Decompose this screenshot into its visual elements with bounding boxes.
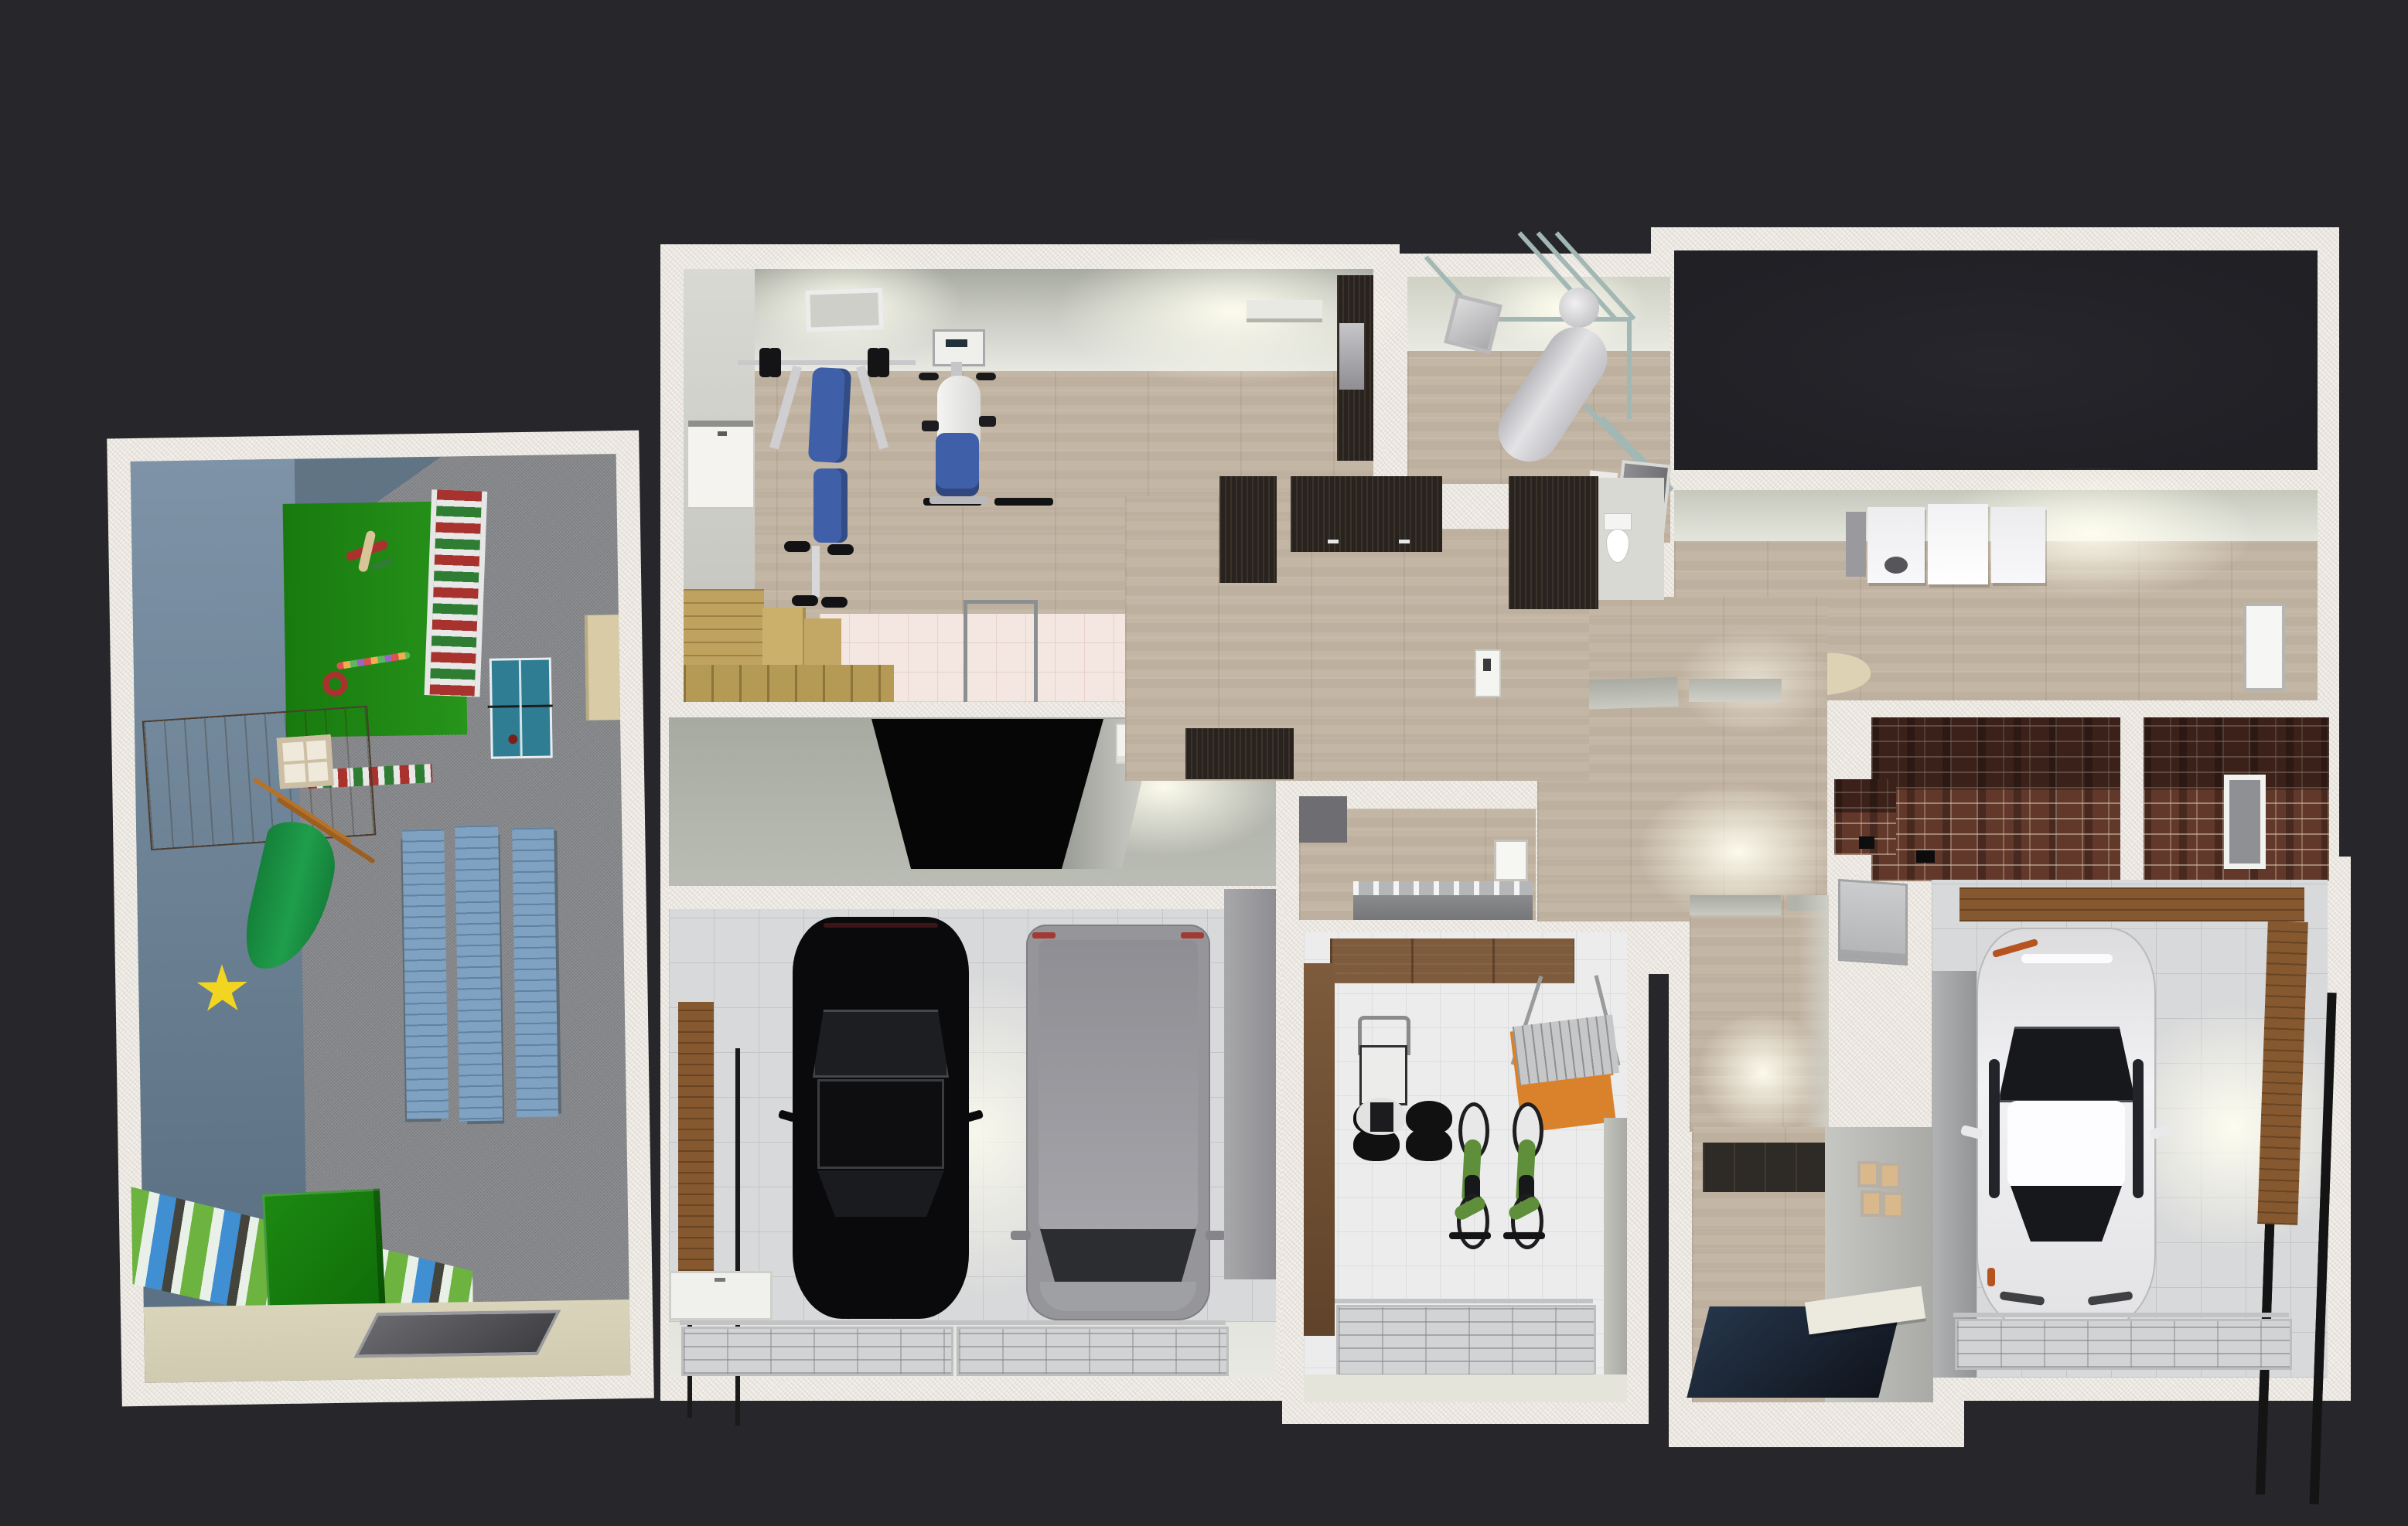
bench-pad-back [808,367,851,463]
wardrobe-row [1291,476,1442,552]
bike-handle-left [919,373,939,380]
bike-screen-display [946,339,967,347]
entry-wainscot [1703,1143,1825,1192]
mower-bag [1359,1045,1407,1105]
garage-door-sill [680,1320,1226,1325]
pipe [1627,317,1632,419]
car-side-window-left [1989,1059,2000,1198]
laundry-cabinet [1928,504,1988,584]
ceiling-vent [805,288,884,332]
cellar-window-frame [2224,775,2266,869]
doorway-lintel [1690,895,1781,915]
garage-door [1955,1319,2292,1370]
corridor-wall-face [1798,895,1829,1132]
garage-tall-cabinet [1224,889,1276,1279]
table-center-line [519,660,523,756]
car-windshield [817,1170,944,1217]
playroom-floor [131,454,631,1383]
bench-frame-left [769,365,802,449]
niche-object [1859,836,1874,849]
bike-base [929,496,988,504]
bathroom-door [1494,840,1528,881]
room-playroom [107,431,654,1407]
shed-apron [1304,1374,1627,1402]
room-shed [1304,932,1627,1402]
room-corridor [1690,895,1829,1132]
bench-pad-seat [813,468,848,543]
wardrobe-tall [1509,476,1598,609]
room-cellar-a [1871,717,2120,881]
van-hood [1040,1282,1196,1311]
playhouse-window [277,734,334,789]
dark-chest [1185,728,1294,779]
mower-engine [1370,1102,1393,1132]
switch-nub [1483,659,1491,671]
van-windshield [1040,1229,1196,1285]
van-mirror-left [1011,1231,1031,1240]
room-garage-main [669,717,1276,1378]
electrical-panel [1838,879,1908,966]
van-mirror-right [1206,1231,1226,1240]
bike-handle-right [976,373,996,380]
room-closet [1125,496,1589,781]
shower-glass-post [1034,600,1038,702]
cabinet-handle [715,1278,725,1282]
picture-frame [1861,1190,1882,1217]
toy-biplane [343,530,391,576]
barbell-plates-left [759,348,772,377]
wood-shelf-beam [1959,887,2304,921]
van-taillight-right [1181,932,1204,938]
sink-faucets [1353,881,1533,895]
laundry-side-cabinet [1846,512,1866,577]
car-taillight-strip [824,923,938,928]
room-garage-right [1932,880,2328,1378]
gray-van [1026,925,1210,1320]
wardrobe [1219,476,1277,583]
rack-panel [1513,1014,1619,1085]
washing-machine [1867,507,1925,583]
picture-frame [1879,1163,1901,1189]
garage-door-sill [1953,1313,2289,1317]
wooden-playhouse [144,707,374,849]
van-taillight-left [1032,932,1056,938]
water-heater-cap [1559,288,1599,328]
car-side-window-right [2133,1059,2144,1198]
room-toilet [1598,478,1664,600]
bicycle [1502,1102,1550,1251]
bike-pedal-left [922,421,939,431]
wall-rack [1514,976,1624,1085]
car-rear-glass-strip [2021,954,2113,963]
cabinet-screen [1339,323,1364,390]
laundry-cabinet [1991,507,2045,583]
shower-glass-screen [964,600,1038,604]
bike-pedal-right [979,416,996,427]
van-roof [1039,940,1198,1229]
car-front-accent [1987,1268,1995,1286]
bicycle [1448,1102,1496,1251]
paddle [508,734,517,744]
trough-sink [1353,881,1533,920]
laundry-door [2243,603,2285,691]
wardrobe-handle [1328,540,1339,543]
garage-door-left [681,1327,953,1376]
car-rear-window [813,1010,949,1078]
room-unlit [1674,250,2318,470]
car-roof [817,1079,944,1169]
blue-bench [402,829,449,1119]
wall-bars-ladder [425,489,488,697]
picture-frame [1882,1192,1904,1218]
gym-black-cabinet [1337,275,1373,461]
bench-foot-frame [812,546,820,597]
toy-biplane-tail [370,557,394,571]
hallway-brick-niche [1834,779,1896,855]
doorway-lintel [1575,677,1678,710]
lawn-mower [1352,1016,1410,1138]
green-toy-box [262,1188,385,1310]
bench-foot-pads [784,541,810,552]
blue-bench [512,827,558,1117]
shower-glass-post [964,600,967,702]
weight-bench [738,346,916,601]
toy-red-ring [322,672,347,697]
bike-handlebar [1503,1232,1545,1239]
floor-hatch [354,1310,561,1357]
washer-drum [1884,557,1908,574]
sink-body [1353,895,1533,920]
wall-shelf [1247,300,1322,322]
beige-cabinet [585,615,620,720]
toilet-bowl [1606,529,1629,563]
barbell-plates-right [868,348,880,377]
exercise-bike [916,329,1001,515]
garage-door-sill [1335,1299,1593,1303]
white-car [1977,928,2156,1330]
toy-caterpillar [336,652,411,670]
bathroom-gray-cabinet [1299,796,1347,843]
bike-screen [933,329,985,366]
garage-door-right [957,1327,1229,1376]
garage-low-cabinet [669,1271,773,1320]
shed-inner-wall [1604,1118,1627,1402]
light-switch-panel [1475,649,1501,697]
bike-seat [936,433,979,496]
shed-side-cabinet [1304,963,1335,1336]
picture-frame [1857,1161,1879,1187]
room-cellar-b [2144,717,2329,881]
garage-inner-wall [669,886,1276,909]
door-handle [718,431,727,436]
garage-wood-shelf [678,1002,714,1271]
doorway-lintel [1689,679,1782,702]
bench-frame-right [856,365,889,449]
toilet-tank [1604,513,1632,530]
sauna-bench-long [684,665,894,702]
table-tennis-table [489,657,553,758]
closet-door-gap [1442,484,1509,529]
floorplan-3d-viewport[interactable] [0,0,2408,1526]
car-rear-window [1998,1027,2136,1102]
room-entry [1692,1127,1933,1402]
floor-drain [1916,850,1935,863]
shed-garage-door [1336,1305,1596,1378]
black-car [793,917,969,1319]
room-bathroom [1299,809,1536,920]
car-roof-glow [2007,1101,2125,1187]
blue-bench [455,826,503,1122]
bike-handlebar [1449,1232,1491,1239]
wardrobe-handle [1399,540,1410,543]
